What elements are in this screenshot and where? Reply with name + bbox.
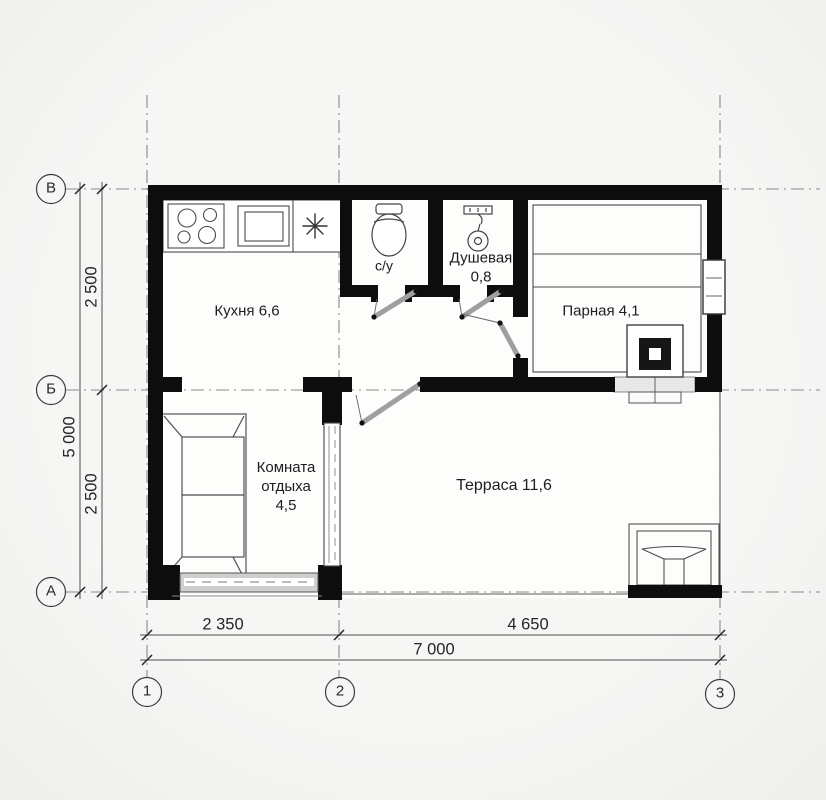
stove-icon	[168, 204, 224, 248]
dim-left-bottom: 2 500	[82, 473, 103, 514]
dim-bottom-total: 7 000	[413, 640, 454, 661]
floor-plan-canvas: Кухня 6,6 с/у Душевая 0,8 Парная 4,1 Ком…	[0, 0, 826, 800]
axis-label-1: 1	[143, 683, 151, 702]
rest-room-side-window	[324, 423, 340, 566]
steam-room-label: Парная 4,1	[562, 303, 639, 322]
axis-label-a: А	[46, 583, 56, 602]
shower-label: Душевая 0,8	[450, 249, 513, 287]
steam-room-window	[703, 260, 725, 314]
dim-left-total: 5 000	[60, 416, 81, 457]
dim-bottom-right: 4 650	[507, 615, 548, 636]
axis-label-3: 3	[716, 685, 724, 704]
heater-niche	[614, 377, 695, 392]
terrace-label: Терраса 11,6	[456, 476, 552, 496]
toilet-icon	[372, 204, 406, 256]
axis-label-2: 2	[336, 683, 344, 702]
dim-left-top: 2 500	[82, 266, 103, 307]
rest-room-label: Комната отдыха 4,5	[257, 459, 316, 515]
axis-label-b: Б	[46, 381, 56, 400]
axis-label-v: В	[46, 180, 56, 199]
dim-bottom-left: 2 350	[202, 615, 243, 636]
sink-icon	[303, 214, 327, 238]
kitchen-label: Кухня 6,6	[214, 303, 279, 322]
floor-plan-drawing	[0, 0, 826, 800]
wc-label: с/у	[375, 257, 393, 275]
